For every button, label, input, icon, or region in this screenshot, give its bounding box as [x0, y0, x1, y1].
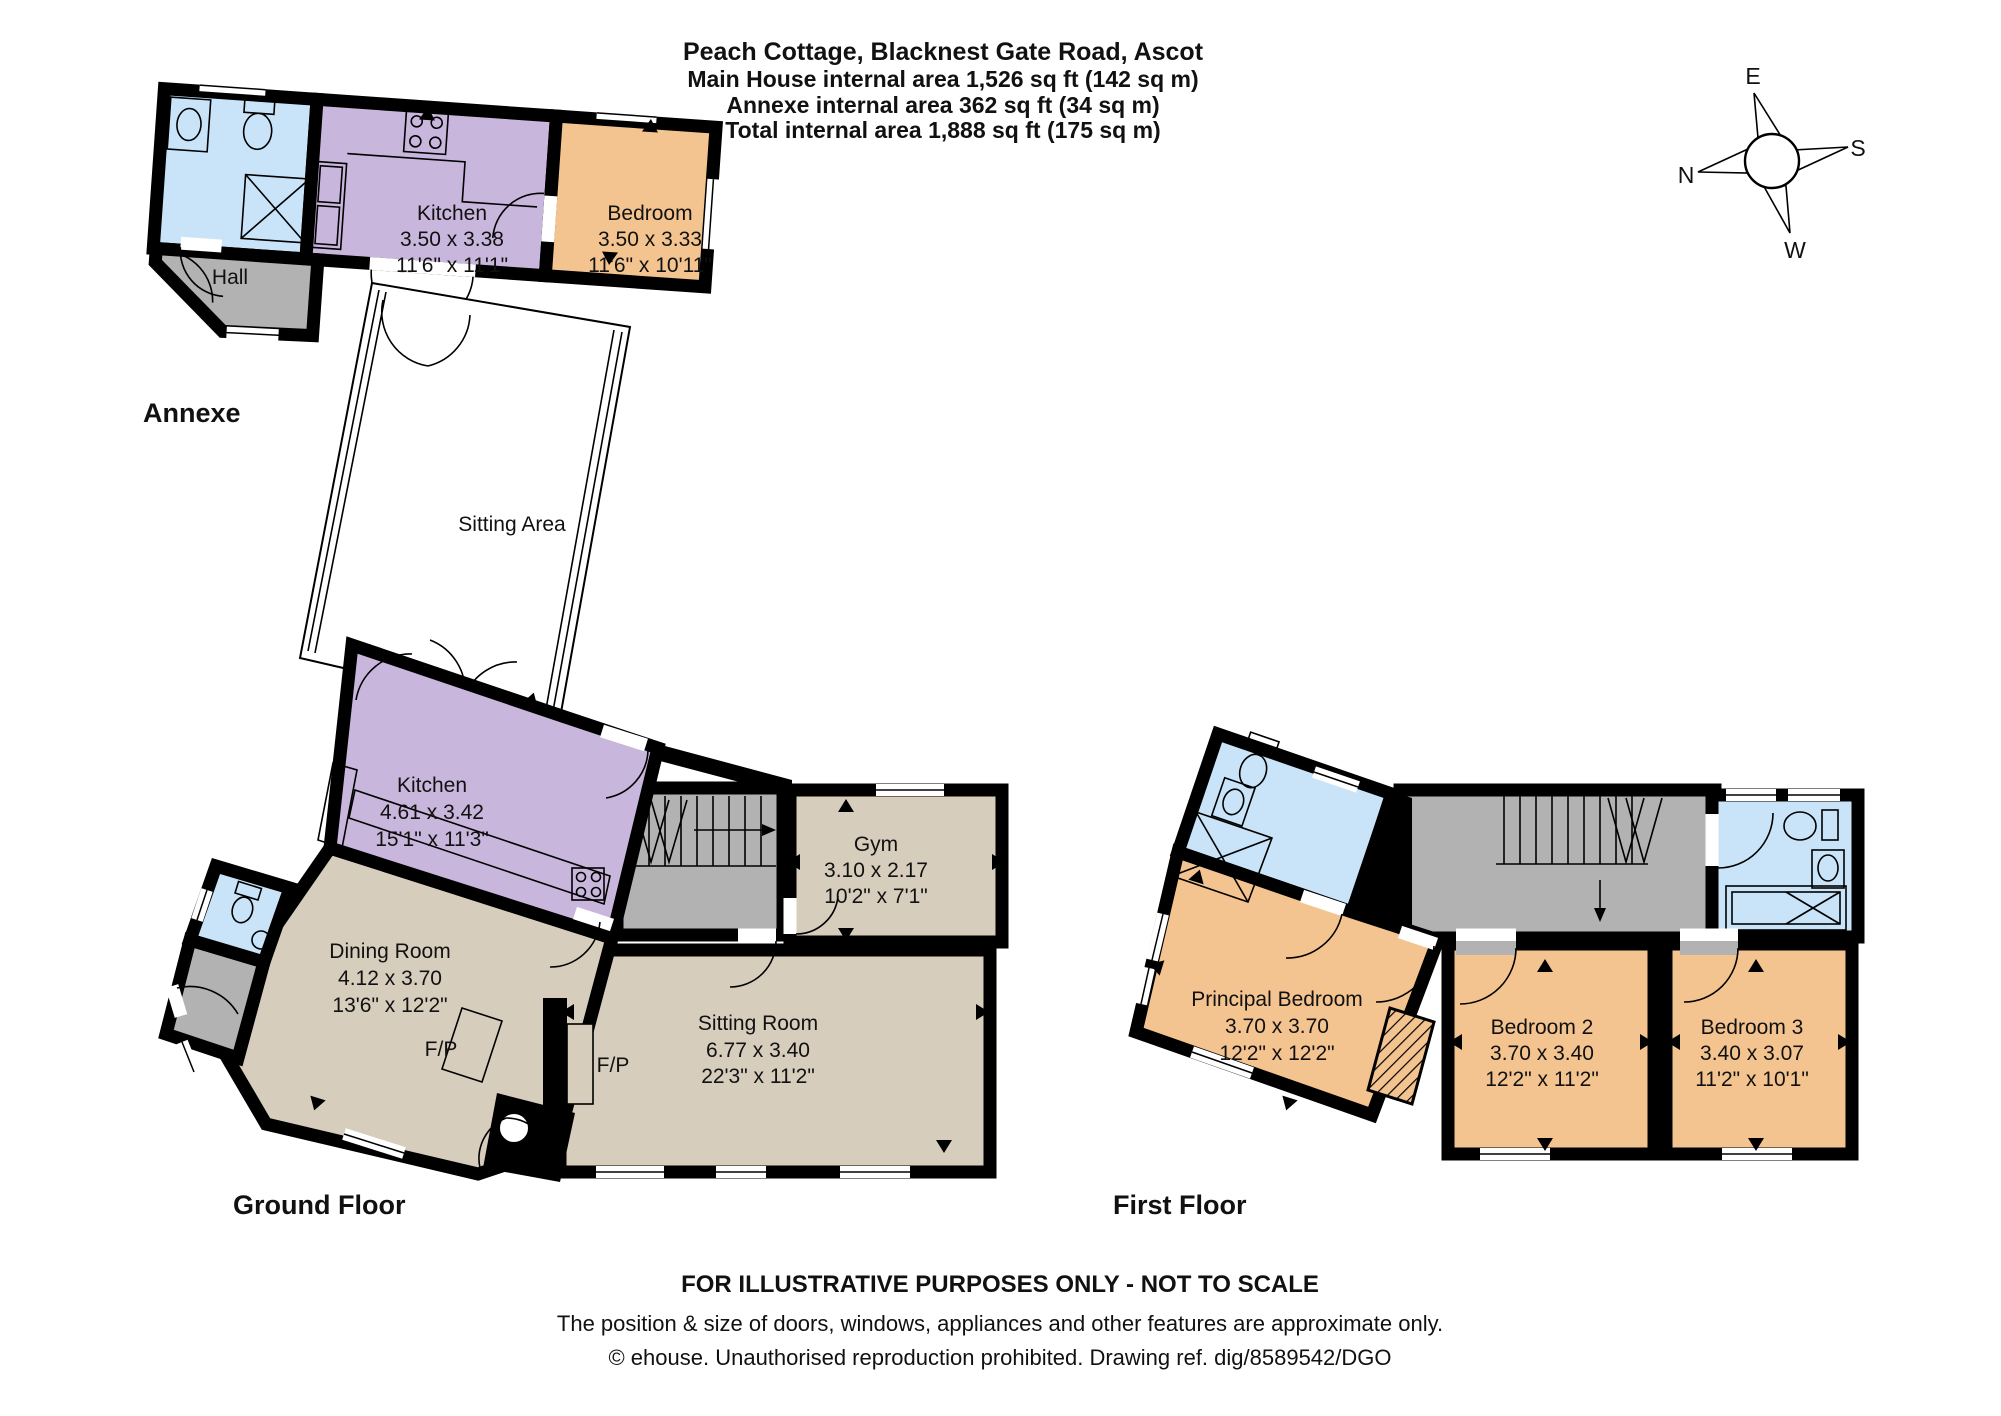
gym-metric: 3.10 x 2.17	[824, 859, 928, 882]
floorplan-drawing: Peach Cottage, Blacknest Gate Road, Asco…	[0, 0, 2001, 1416]
gf-kitchen-metric: 4.61 x 3.42	[380, 801, 484, 824]
bedroom-3-metric: 3.40 x 3.07	[1700, 1042, 1804, 1065]
dining-name: Dining Room	[329, 940, 450, 963]
annexe-hall-name: Hall	[212, 266, 248, 289]
bedroom-3-name: Bedroom 3	[1701, 1016, 1804, 1039]
footer-disclaimer: The position & size of doors, windows, a…	[557, 1311, 1443, 1336]
annexe-bedroom-name: Bedroom	[607, 202, 692, 225]
bedroom-2-imperial: 12'2" x 11'2"	[1485, 1068, 1599, 1091]
title-block: Peach Cottage, Blacknest Gate Road, Asco…	[683, 38, 1204, 143]
sitting-chimney-wall	[543, 998, 567, 1134]
bedroom-divider-wall	[1650, 940, 1670, 1156]
annexe-area: Annexe internal area 362 sq ft (34 sq m)	[726, 92, 1159, 118]
principal-bedroom-metric: 3.70 x 3.70	[1225, 1015, 1329, 1038]
dining-metric: 4.12 x 3.70	[338, 967, 442, 990]
compass-west-label: W	[1784, 237, 1806, 263]
main-house-area: Main House internal area 1,526 sq ft (14…	[687, 66, 1198, 92]
bedroom-3-imperial: 11'2" x 10'1"	[1695, 1068, 1809, 1091]
floorplan-page: Peach Cottage, Blacknest Gate Road, Asco…	[0, 0, 2001, 1416]
annexe-bathroom	[153, 89, 317, 259]
dining-fireplace-label: F/P	[425, 1038, 458, 1061]
sitting-room-imperial: 22'3" x 11'2"	[701, 1065, 815, 1088]
sitting-room-metric: 6.77 x 3.40	[706, 1039, 810, 1062]
first-floor-plan: Principal Bedroom 3.70 x 3.70 12'2" x 12…	[1113, 732, 1858, 1220]
compass-south-label: S	[1850, 135, 1865, 161]
annexe-bedroom-imperial: 11'6" x 10'11"	[588, 254, 712, 277]
total-area: Total internal area 1,888 sq ft (175 sq …	[725, 117, 1160, 143]
first-floor-label: First Floor	[1113, 1190, 1247, 1220]
bedroom-2-name: Bedroom 2	[1491, 1016, 1594, 1039]
gym-name: Gym	[854, 833, 898, 856]
compass-east-label: E	[1745, 63, 1760, 89]
door-threshold	[1456, 941, 1516, 955]
stove-icon	[499, 1113, 529, 1143]
sitting-fireplace-label: F/P	[597, 1054, 630, 1077]
annexe-plan-label: Annexe	[143, 398, 241, 428]
sitting-area-label: Sitting Area	[458, 513, 566, 536]
sitting-fireplace-breast	[567, 1024, 593, 1104]
dining-imperial: 13'6" x 12'2"	[332, 994, 447, 1017]
principal-bedroom-imperial: 12'2" x 12'2"	[1219, 1042, 1334, 1065]
annexe-bedroom-metric: 3.50 x 3.33	[598, 228, 702, 251]
gf-kitchen-name: Kitchen	[397, 774, 467, 797]
gym-imperial: 10'2" x 7'1"	[824, 885, 928, 908]
annexe-hall-room	[151, 248, 318, 337]
page-title: Peach Cottage, Blacknest Gate Road, Asco…	[683, 38, 1204, 66]
footer-block: FOR ILLUSTRATIVE PURPOSES ONLY - NOT TO …	[557, 1271, 1443, 1370]
gf-kitchen-imperial: 15'1" x 11'3"	[375, 828, 489, 851]
ground-floor-label: Ground Floor	[233, 1190, 406, 1220]
bedroom-2-metric: 3.70 x 3.40	[1490, 1042, 1594, 1065]
ground-floor-plan: Kitchen 4.61 x 3.42 15'1" x 11'3" Gym 3.…	[166, 645, 1005, 1220]
wall-arrow	[1279, 1096, 1298, 1113]
compass-rose-icon: E S W N	[1678, 63, 1866, 263]
sitting-room-name: Sitting Room	[698, 1012, 818, 1035]
footer-disclaimer-bold: FOR ILLUSTRATIVE PURPOSES ONLY - NOT TO …	[681, 1271, 1319, 1298]
footer-copyright: © ehouse. Unauthorised reproduction proh…	[608, 1345, 1391, 1370]
principal-bedroom-name: Principal Bedroom	[1191, 988, 1363, 1011]
annexe-kitchen-imperial: 11'6" x 11'1"	[396, 254, 508, 277]
compass-north-label: N	[1678, 162, 1695, 188]
annexe-kitchen-name: Kitchen	[417, 202, 487, 225]
annexe-kitchen-metric: 3.50 x 3.38	[400, 228, 504, 251]
door-threshold	[1680, 941, 1738, 955]
